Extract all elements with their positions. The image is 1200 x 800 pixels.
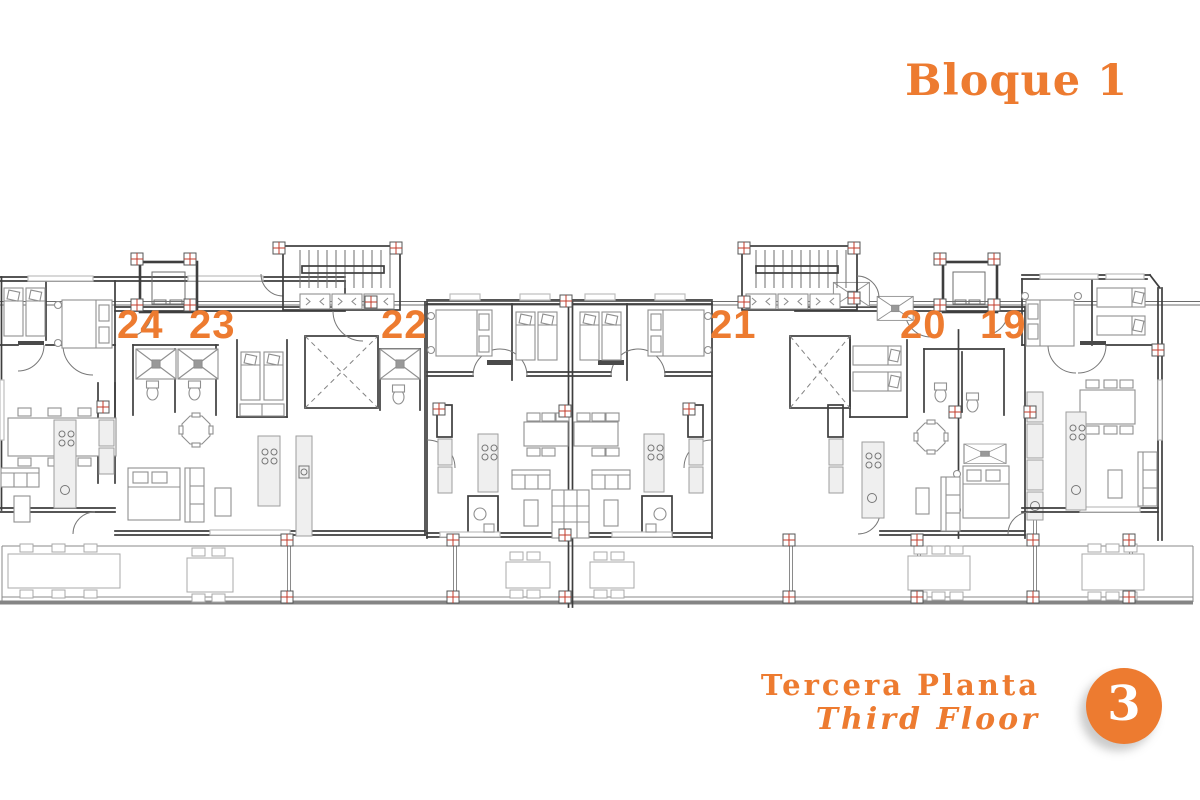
unit-label-21: 21 xyxy=(710,305,757,345)
unit-label-24: 24 xyxy=(117,305,164,345)
stairwell-left xyxy=(283,246,400,310)
block-title: Bloque 1 xyxy=(905,56,1128,106)
floor-plan-page: Bloque 1 24 23 22 21 20 19 Tercera Plant… xyxy=(0,0,1200,800)
column-markers xyxy=(97,242,1164,603)
terraces xyxy=(0,512,1193,603)
unit-label-20: 20 xyxy=(900,305,947,345)
unit-label-19: 19 xyxy=(980,305,1027,345)
floor-number-badge: 3 xyxy=(1086,668,1162,744)
terrace-table xyxy=(8,544,1144,602)
unit-22-21-block xyxy=(427,294,712,607)
unit-label-23: 23 xyxy=(189,305,236,345)
floor-number: 3 xyxy=(1107,676,1140,732)
unit-label-22: 22 xyxy=(381,305,428,345)
floor-label-spanish: Tercera Planta xyxy=(761,668,1040,702)
floor-label-english: Third Floor xyxy=(816,702,1040,737)
